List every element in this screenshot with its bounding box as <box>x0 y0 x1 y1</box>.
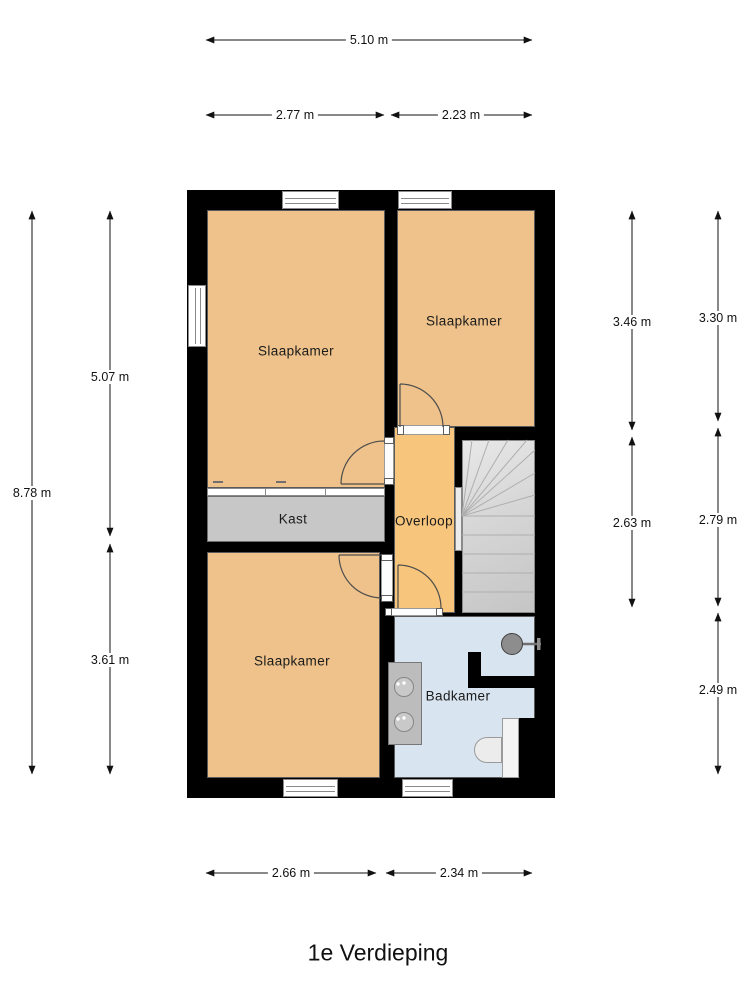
double-sink-vanity <box>388 662 422 745</box>
toilet-icon <box>474 737 502 763</box>
window-frame <box>195 288 201 344</box>
track-tick <box>265 489 266 495</box>
doorway-cap <box>384 437 394 444</box>
dim-bottom-left: 2.66 m <box>268 866 314 880</box>
doorway-cap <box>381 554 393 561</box>
doorway-cap <box>381 595 393 602</box>
floor-title: 1e Verdieping <box>308 940 449 967</box>
dim-right-outer-lower: 2.49 m <box>695 683 741 697</box>
window-frame <box>401 198 449 204</box>
sliding-door-marker <box>276 481 286 483</box>
label-bathroom: Badkamer <box>426 689 491 704</box>
dim-top-right: 2.23 m <box>438 108 484 122</box>
dim-left-upper: 5.07 m <box>87 370 133 384</box>
window-frame <box>286 786 335 792</box>
track-tick <box>325 489 326 495</box>
doorway-cap <box>385 608 392 616</box>
label-closet: Kast <box>279 512 308 527</box>
doorway-cap <box>384 478 394 485</box>
dim-right-outer-middle: 2.79 m <box>695 513 741 527</box>
doorway-cap <box>397 425 404 435</box>
toilet-cistern <box>502 718 519 778</box>
closet-sliding-door-track <box>207 488 385 496</box>
dim-left-total: 8.78 m <box>9 486 55 500</box>
window-bottom-right <box>402 779 453 797</box>
staircase <box>462 440 535 613</box>
dim-right-inner-upper: 3.46 m <box>609 315 655 329</box>
window-top-right <box>398 191 452 209</box>
label-bedroom-3: Slaapkamer <box>254 654 330 669</box>
window-bottom-left <box>283 779 338 797</box>
window-left <box>188 285 206 347</box>
label-bedroom-1: Slaapkamer <box>258 344 334 359</box>
label-bedroom-2: Slaapkamer <box>426 314 502 329</box>
dim-left-lower: 3.61 m <box>87 653 133 667</box>
window-frame <box>405 786 450 792</box>
sliding-door-marker <box>213 481 223 483</box>
dim-right-inner-lower: 2.63 m <box>609 516 655 530</box>
window-top-left <box>282 191 339 209</box>
toilet-duct <box>519 718 535 778</box>
dim-top-total: 5.10 m <box>346 33 392 47</box>
dim-right-outer-upper: 3.30 m <box>695 311 741 325</box>
dim-top-left: 2.77 m <box>272 108 318 122</box>
doorway-bathroom <box>385 608 443 616</box>
doorway-cap <box>443 425 450 435</box>
shower-partition-wall <box>468 676 535 688</box>
window-frame <box>285 198 336 204</box>
label-landing: Overloop <box>395 514 453 529</box>
stair-railing <box>455 487 462 551</box>
floor-plan-page: Slaapkamer Slaapkamer Slaapkamer Kast Ov… <box>0 0 750 1000</box>
dim-bottom-right: 2.34 m <box>436 866 482 880</box>
doorway-cap <box>436 608 443 616</box>
